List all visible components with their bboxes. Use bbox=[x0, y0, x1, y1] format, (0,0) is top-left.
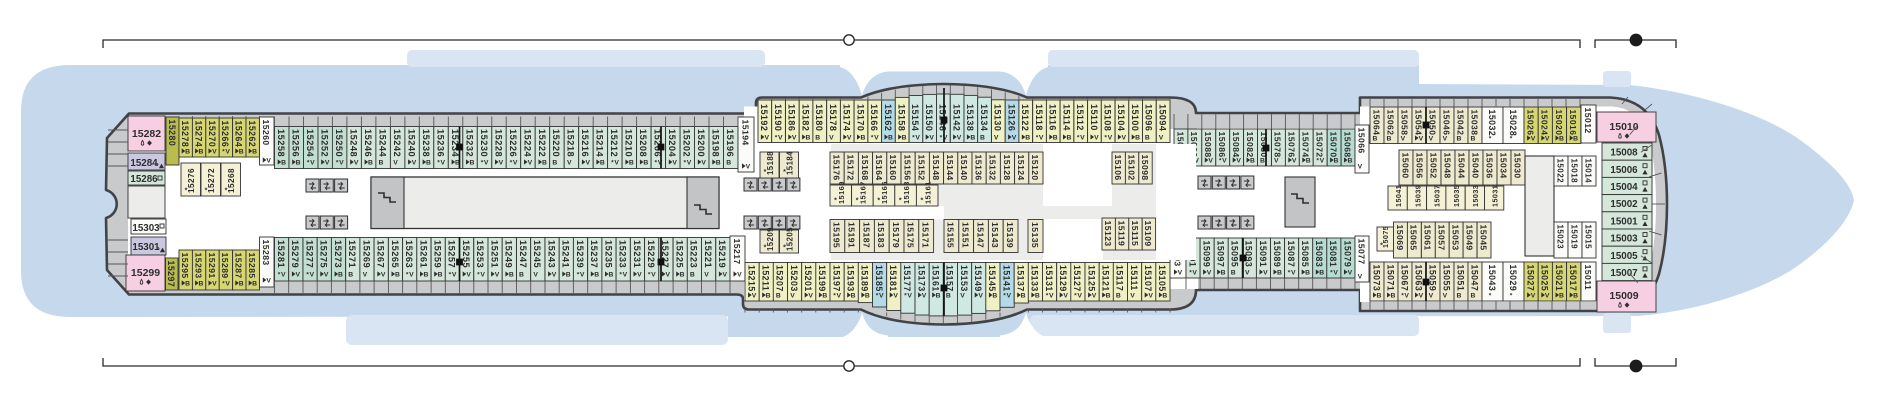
svg-text:15243: 15243 bbox=[546, 240, 556, 268]
svg-text:15186: 15186 bbox=[787, 104, 797, 131]
svg-text:B: B bbox=[600, 160, 605, 167]
svg-text:B: B bbox=[469, 160, 474, 167]
svg-text:15002: 15002 bbox=[1610, 199, 1638, 210]
svg-text:V: V bbox=[1192, 270, 1197, 277]
svg-text:15114: 15114 bbox=[1061, 104, 1071, 131]
svg-text:15198: 15198 bbox=[711, 129, 721, 157]
svg-text:V: V bbox=[978, 293, 983, 300]
svg-text:15057: 15057 bbox=[1437, 225, 1447, 251]
svg-text:B: B bbox=[239, 149, 244, 156]
svg-text:15275: 15275 bbox=[319, 240, 329, 268]
svg-text:V: V bbox=[829, 135, 834, 142]
svg-text:15010: 15010 bbox=[1609, 121, 1638, 133]
svg-text:15266: 15266 bbox=[220, 121, 230, 148]
svg-text:V: V bbox=[994, 135, 999, 142]
svg-text:15064: 15064 bbox=[1371, 110, 1381, 136]
svg-text:B: B bbox=[1025, 135, 1030, 142]
svg-text:V: V bbox=[1358, 274, 1363, 281]
svg-text:15009: 15009 bbox=[1609, 290, 1638, 302]
svg-text:15131: 15131 bbox=[1044, 265, 1054, 292]
svg-text:15224: 15224 bbox=[522, 129, 532, 157]
svg-text:15052: 15052 bbox=[1428, 153, 1438, 179]
svg-text:V: V bbox=[1207, 270, 1212, 277]
svg-text:*: * bbox=[764, 169, 767, 176]
svg-text:15099: 15099 bbox=[1201, 241, 1211, 268]
svg-text:15058: 15058 bbox=[1399, 110, 1409, 136]
svg-text:V: V bbox=[484, 160, 489, 167]
svg-text:V: V bbox=[1429, 293, 1434, 300]
svg-text:V: V bbox=[1531, 293, 1536, 300]
svg-text:*: * bbox=[877, 198, 880, 205]
svg-text:V: V bbox=[409, 272, 414, 279]
svg-text:15232: 15232 bbox=[464, 129, 474, 157]
svg-text:15123: 15123 bbox=[1103, 221, 1113, 247]
svg-text:V: V bbox=[1049, 293, 1054, 300]
svg-text:V: V bbox=[1178, 270, 1183, 277]
svg-text:*: * bbox=[834, 198, 837, 205]
svg-text:15153: 15153 bbox=[959, 265, 969, 292]
svg-text:15062: 15062 bbox=[1385, 110, 1395, 136]
svg-text:V: V bbox=[957, 135, 962, 142]
svg-text:V: V bbox=[752, 293, 757, 300]
svg-text:V: V bbox=[513, 160, 518, 167]
svg-text:B: B bbox=[296, 160, 301, 167]
svg-text:15137: 15137 bbox=[1016, 265, 1026, 292]
svg-text:V: V bbox=[499, 160, 504, 167]
svg-text:15240: 15240 bbox=[406, 129, 416, 157]
svg-text:15158: 15158 bbox=[897, 104, 907, 131]
svg-text:B: B bbox=[1231, 270, 1236, 277]
svg-text:15106: 15106 bbox=[1113, 155, 1123, 181]
svg-text:15060: 15060 bbox=[1400, 153, 1410, 179]
svg-text:15209: 15209 bbox=[766, 227, 775, 251]
svg-text:V: V bbox=[1063, 293, 1068, 300]
svg-text:15303: 15303 bbox=[132, 223, 160, 234]
svg-text:15088: 15088 bbox=[1203, 132, 1213, 158]
svg-text:15216: 15216 bbox=[580, 129, 590, 157]
svg-text:15168: 15168 bbox=[860, 155, 870, 181]
svg-text:15139: 15139 bbox=[1005, 222, 1015, 248]
svg-text:B: B bbox=[1066, 135, 1071, 142]
svg-text:15254: 15254 bbox=[305, 129, 315, 157]
svg-text:V: V bbox=[1292, 158, 1297, 165]
svg-text:15297: 15297 bbox=[166, 261, 176, 288]
svg-text:15163: 15163 bbox=[902, 181, 911, 204]
svg-text:*: * bbox=[783, 245, 786, 252]
svg-text:15037: 15037 bbox=[1433, 185, 1442, 207]
svg-text:15262: 15262 bbox=[247, 121, 257, 148]
svg-text:B: B bbox=[1305, 270, 1310, 277]
svg-text:15015: 15015 bbox=[1583, 225, 1592, 250]
svg-text:V: V bbox=[1545, 293, 1550, 300]
svg-text:*: * bbox=[899, 198, 902, 205]
svg-text:V: V bbox=[1429, 136, 1434, 143]
svg-text:V: V bbox=[737, 272, 742, 279]
svg-text:15043: 15043 bbox=[1487, 265, 1497, 292]
svg-text:15185: 15185 bbox=[874, 265, 884, 292]
svg-text:15286: 15286 bbox=[130, 174, 158, 185]
svg-text:B: B bbox=[594, 272, 599, 279]
svg-text:15110: 15110 bbox=[1089, 104, 1099, 131]
svg-text:15238: 15238 bbox=[421, 129, 431, 157]
svg-text:15031: 15031 bbox=[1491, 185, 1500, 207]
svg-text:B: B bbox=[1250, 158, 1255, 165]
svg-text:15231: 15231 bbox=[632, 240, 642, 268]
svg-text:15272: 15272 bbox=[207, 168, 216, 193]
svg-text:15129: 15129 bbox=[1058, 265, 1068, 292]
svg-text:15215: 15215 bbox=[746, 265, 756, 292]
svg-text:B: B bbox=[726, 160, 731, 167]
svg-text:B: B bbox=[1221, 270, 1226, 277]
svg-text:15071: 15071 bbox=[1385, 265, 1395, 292]
svg-text:B: B bbox=[199, 281, 204, 288]
svg-text:V: V bbox=[225, 281, 230, 288]
svg-text:V: V bbox=[580, 272, 585, 279]
svg-text:B: B bbox=[1386, 136, 1391, 143]
svg-text:V: V bbox=[922, 293, 927, 300]
svg-text:V: V bbox=[666, 272, 671, 279]
svg-text:B: B bbox=[1135, 135, 1140, 142]
svg-text:B: B bbox=[629, 160, 634, 167]
svg-text:*: * bbox=[1380, 243, 1383, 250]
svg-text:15234: 15234 bbox=[450, 129, 460, 157]
svg-text:15040: 15040 bbox=[1470, 153, 1480, 179]
svg-text:15036: 15036 bbox=[1484, 153, 1494, 179]
svg-text:15229: 15229 bbox=[646, 240, 656, 268]
svg-text:15151: 15151 bbox=[961, 222, 971, 248]
svg-text:V: V bbox=[225, 149, 230, 156]
svg-text:15117: 15117 bbox=[1115, 265, 1125, 291]
svg-text:15155: 15155 bbox=[946, 222, 956, 248]
svg-text:V: V bbox=[354, 160, 359, 167]
svg-text:15130: 15130 bbox=[993, 104, 1003, 131]
svg-text:V: V bbox=[808, 293, 813, 300]
svg-text:15251: 15251 bbox=[489, 240, 499, 268]
svg-text:15133: 15133 bbox=[1030, 265, 1040, 292]
svg-text:15140: 15140 bbox=[959, 155, 969, 181]
svg-text:B: B bbox=[1162, 293, 1167, 300]
svg-text:15082: 15082 bbox=[1245, 132, 1255, 158]
svg-text:B: B bbox=[766, 293, 771, 300]
svg-text:15134: 15134 bbox=[979, 104, 989, 131]
svg-text:15260: 15260 bbox=[261, 120, 271, 146]
svg-text:15047: 15047 bbox=[1469, 265, 1479, 292]
svg-text:15029: 15029 bbox=[1508, 265, 1518, 292]
svg-text:*: * bbox=[921, 198, 924, 205]
svg-text:V: V bbox=[1130, 293, 1135, 300]
svg-text:V: V bbox=[907, 293, 912, 300]
svg-text:V: V bbox=[1222, 158, 1227, 165]
svg-text:15156: 15156 bbox=[902, 155, 912, 181]
svg-text:*: * bbox=[225, 188, 228, 195]
svg-text:B: B bbox=[608, 272, 613, 279]
svg-text:15018: 15018 bbox=[1569, 159, 1578, 184]
svg-text:B: B bbox=[690, 272, 695, 279]
svg-text:15109: 15109 bbox=[1143, 221, 1153, 247]
svg-text:V: V bbox=[746, 164, 751, 171]
svg-text:B: B bbox=[1116, 293, 1121, 300]
svg-text:15022: 15022 bbox=[1555, 159, 1564, 184]
svg-text:15120: 15120 bbox=[1030, 155, 1040, 181]
svg-text:15293: 15293 bbox=[193, 253, 203, 279]
svg-text:15175: 15175 bbox=[906, 222, 916, 248]
svg-text:15004: 15004 bbox=[1610, 182, 1638, 193]
svg-text:15132: 15132 bbox=[988, 155, 998, 181]
svg-text:15154: 15154 bbox=[910, 104, 920, 131]
svg-text:15252: 15252 bbox=[320, 129, 330, 157]
svg-text:15084: 15084 bbox=[1231, 132, 1241, 158]
svg-text:15241: 15241 bbox=[561, 240, 571, 268]
svg-text:15143: 15143 bbox=[990, 222, 1000, 248]
svg-text:B: B bbox=[1035, 293, 1040, 300]
svg-text:15121: 15121 bbox=[1101, 265, 1111, 292]
svg-text:15203: 15203 bbox=[789, 265, 799, 292]
svg-text:15301: 15301 bbox=[132, 242, 160, 253]
svg-text:15148: 15148 bbox=[931, 155, 941, 181]
svg-text:15207: 15207 bbox=[775, 265, 785, 292]
svg-text:B: B bbox=[888, 135, 893, 142]
svg-text:15049: 15049 bbox=[1464, 225, 1474, 251]
svg-text:15164: 15164 bbox=[874, 155, 884, 181]
svg-text:15053: 15053 bbox=[1451, 225, 1461, 251]
svg-text:15244: 15244 bbox=[377, 129, 387, 157]
svg-text:V: V bbox=[296, 272, 301, 279]
svg-text:15171: 15171 bbox=[921, 222, 931, 248]
svg-text:B: B bbox=[348, 272, 353, 279]
svg-text:15190: 15190 bbox=[773, 104, 783, 131]
svg-text:V: V bbox=[466, 272, 471, 279]
svg-text:V: V bbox=[765, 135, 770, 142]
svg-text:15176: 15176 bbox=[831, 155, 841, 181]
svg-text:15030: 15030 bbox=[1512, 153, 1522, 179]
svg-text:15211: 15211 bbox=[761, 265, 771, 291]
svg-text:B: B bbox=[1559, 293, 1564, 300]
svg-text:V: V bbox=[310, 160, 315, 167]
svg-text:15249: 15249 bbox=[504, 240, 514, 268]
svg-text:15196: 15196 bbox=[725, 129, 735, 157]
svg-text:15180: 15180 bbox=[814, 104, 824, 131]
svg-text:15188: 15188 bbox=[766, 151, 775, 175]
svg-text:15264: 15264 bbox=[234, 121, 244, 148]
svg-text:15115: 15115 bbox=[1130, 221, 1140, 247]
svg-text:V: V bbox=[929, 135, 934, 142]
svg-text:V: V bbox=[1245, 270, 1250, 277]
svg-text:15270: 15270 bbox=[207, 121, 217, 148]
svg-text:V: V bbox=[1148, 293, 1153, 300]
svg-text:15020: 15020 bbox=[1554, 110, 1564, 136]
svg-text:15080: 15080 bbox=[1259, 132, 1269, 158]
svg-text:15046: 15046 bbox=[1441, 110, 1451, 136]
svg-text:15256: 15256 bbox=[291, 129, 301, 157]
svg-text:15034: 15034 bbox=[1498, 153, 1508, 179]
svg-text:15124: 15124 bbox=[1016, 155, 1026, 181]
svg-text:15005: 15005 bbox=[1610, 251, 1638, 262]
svg-text:B: B bbox=[1456, 293, 1461, 300]
svg-text:V: V bbox=[1012, 135, 1017, 142]
svg-text:B: B bbox=[395, 272, 400, 279]
svg-text:V: V bbox=[1092, 293, 1097, 300]
svg-text:15059: 15059 bbox=[1427, 265, 1437, 292]
svg-text:15044: 15044 bbox=[1456, 153, 1466, 179]
svg-text:15027: 15027 bbox=[1525, 265, 1535, 292]
svg-text:B: B bbox=[338, 272, 343, 279]
svg-text:15119: 15119 bbox=[1116, 221, 1126, 247]
svg-text:15045: 15045 bbox=[1478, 225, 1488, 251]
svg-text:B: B bbox=[509, 272, 514, 279]
svg-text:15179: 15179 bbox=[891, 222, 901, 248]
svg-text:B: B bbox=[1021, 293, 1026, 300]
svg-text:B: B bbox=[822, 293, 827, 300]
svg-text:15235: 15235 bbox=[603, 240, 613, 268]
svg-text:15161: 15161 bbox=[931, 265, 941, 292]
svg-text:V: V bbox=[1159, 135, 1164, 142]
svg-text:15024: 15024 bbox=[1540, 110, 1550, 136]
svg-text:15100: 15100 bbox=[1130, 104, 1140, 131]
svg-text:V: V bbox=[1348, 270, 1353, 277]
svg-text:15225: 15225 bbox=[675, 240, 685, 268]
svg-text:15226: 15226 bbox=[508, 129, 518, 157]
svg-text:B: B bbox=[860, 135, 865, 142]
svg-text:V: V bbox=[1208, 158, 1213, 165]
svg-text:V: V bbox=[701, 160, 706, 167]
svg-text:15197: 15197 bbox=[831, 265, 841, 292]
svg-text:V: V bbox=[723, 272, 728, 279]
svg-text:V: V bbox=[1094, 135, 1099, 142]
svg-text:15111: 15111 bbox=[1129, 265, 1139, 291]
svg-text:B: B bbox=[542, 160, 547, 167]
svg-text:15189: 15189 bbox=[860, 265, 870, 292]
svg-text:15268: 15268 bbox=[227, 168, 236, 193]
svg-text:15091: 15091 bbox=[1258, 241, 1268, 268]
svg-text:15274: 15274 bbox=[193, 121, 203, 148]
svg-text:15277: 15277 bbox=[304, 240, 314, 268]
svg-text:15126: 15126 bbox=[1006, 104, 1016, 131]
svg-text:B: B bbox=[851, 293, 856, 300]
svg-text:15167: 15167 bbox=[859, 181, 868, 204]
svg-text:15011: 15011 bbox=[1583, 265, 1593, 291]
svg-text:15008: 15008 bbox=[1610, 148, 1638, 159]
svg-text:B: B bbox=[1277, 270, 1282, 277]
svg-text:V: V bbox=[672, 160, 677, 167]
svg-text:B: B bbox=[379, 160, 384, 167]
svg-text:V: V bbox=[495, 272, 500, 279]
svg-text:15169: 15169 bbox=[837, 181, 846, 204]
svg-text:V: V bbox=[586, 160, 591, 167]
svg-text:15074: 15074 bbox=[1301, 132, 1311, 158]
svg-text:15070: 15070 bbox=[1328, 132, 1338, 158]
svg-text:V: V bbox=[528, 160, 533, 167]
svg-text:B: B bbox=[643, 160, 648, 167]
svg-text:V: V bbox=[790, 293, 795, 300]
svg-text:15184: 15184 bbox=[786, 151, 795, 175]
svg-text:B: B bbox=[199, 149, 204, 156]
svg-text:B: B bbox=[1470, 293, 1475, 300]
svg-text:15118: 15118 bbox=[1034, 104, 1044, 131]
svg-text:15135: 15135 bbox=[1030, 222, 1040, 248]
svg-text:15276: 15276 bbox=[187, 168, 196, 193]
svg-text:15269: 15269 bbox=[361, 240, 371, 268]
svg-text:*: * bbox=[1510, 136, 1513, 143]
svg-text:15144: 15144 bbox=[945, 155, 955, 181]
svg-text:B: B bbox=[519, 272, 524, 279]
svg-text:B: B bbox=[1347, 158, 1352, 165]
svg-text:V: V bbox=[960, 293, 965, 300]
svg-text:15177: 15177 bbox=[902, 265, 912, 292]
svg-text:V: V bbox=[212, 281, 217, 288]
svg-text:15247: 15247 bbox=[518, 240, 528, 268]
svg-text:15162: 15162 bbox=[883, 104, 893, 131]
svg-text:V: V bbox=[567, 160, 572, 167]
svg-text:15178: 15178 bbox=[828, 104, 838, 131]
svg-text:V: V bbox=[452, 272, 457, 279]
svg-text:V: V bbox=[1443, 136, 1448, 143]
svg-text:15085: 15085 bbox=[1300, 241, 1310, 268]
svg-text:15183: 15183 bbox=[876, 222, 886, 248]
svg-text:B: B bbox=[1470, 136, 1475, 143]
svg-text:15285: 15285 bbox=[247, 253, 257, 279]
svg-text:15191: 15191 bbox=[847, 222, 857, 248]
svg-text:15160: 15160 bbox=[888, 155, 898, 181]
svg-text:V: V bbox=[614, 160, 619, 167]
svg-text:15192: 15192 bbox=[759, 104, 769, 131]
svg-text:15048: 15048 bbox=[1442, 153, 1452, 179]
svg-text:15094: 15094 bbox=[1157, 104, 1167, 131]
svg-text:15170: 15170 bbox=[855, 104, 865, 131]
svg-text:15220: 15220 bbox=[551, 129, 561, 157]
svg-text:15199: 15199 bbox=[817, 265, 827, 292]
svg-text:15287: 15287 bbox=[234, 253, 244, 279]
svg-text:B: B bbox=[980, 135, 985, 142]
svg-text:15116: 15116 bbox=[1048, 104, 1058, 131]
svg-text:15284: 15284 bbox=[130, 158, 158, 169]
svg-text:15104: 15104 bbox=[1116, 104, 1126, 131]
svg-text:15228: 15228 bbox=[493, 129, 503, 157]
svg-text:V: V bbox=[1007, 293, 1012, 300]
svg-text:15279: 15279 bbox=[290, 240, 300, 268]
svg-text:V: V bbox=[893, 293, 898, 300]
svg-text:15001: 15001 bbox=[1610, 216, 1638, 227]
svg-text:15289: 15289 bbox=[220, 253, 230, 279]
svg-text:15149: 15149 bbox=[973, 265, 983, 292]
svg-text:B: B bbox=[970, 135, 975, 142]
svg-text:B: B bbox=[680, 272, 685, 279]
svg-text:B: B bbox=[426, 160, 431, 167]
svg-text:15165: 15165 bbox=[880, 181, 889, 204]
svg-text:15066: 15066 bbox=[1356, 128, 1366, 154]
svg-text:B: B bbox=[946, 293, 951, 300]
svg-text:15069: 15069 bbox=[1395, 225, 1405, 251]
svg-text:15281: 15281 bbox=[276, 240, 286, 268]
svg-text:15072: 15072 bbox=[1315, 132, 1325, 158]
svg-text:V: V bbox=[1274, 158, 1279, 165]
svg-text:15025: 15025 bbox=[1540, 265, 1550, 292]
svg-text:15246: 15246 bbox=[363, 129, 373, 157]
svg-text:15258: 15258 bbox=[276, 129, 286, 157]
svg-text:15056: 15056 bbox=[1414, 153, 1424, 179]
svg-text:15193: 15193 bbox=[846, 265, 856, 292]
svg-text:*: * bbox=[1489, 136, 1492, 143]
svg-text:15212: 15212 bbox=[609, 129, 619, 157]
svg-text:B: B bbox=[1573, 293, 1578, 300]
svg-text:B: B bbox=[806, 135, 811, 142]
svg-text:V: V bbox=[325, 160, 330, 167]
svg-text:V: V bbox=[1236, 158, 1241, 165]
svg-text:15068: 15068 bbox=[1342, 132, 1352, 158]
svg-text:V: V bbox=[778, 135, 783, 142]
svg-text:15245: 15245 bbox=[532, 240, 542, 268]
svg-text:B: B bbox=[1334, 158, 1339, 165]
svg-text:15108: 15108 bbox=[1103, 104, 1113, 131]
